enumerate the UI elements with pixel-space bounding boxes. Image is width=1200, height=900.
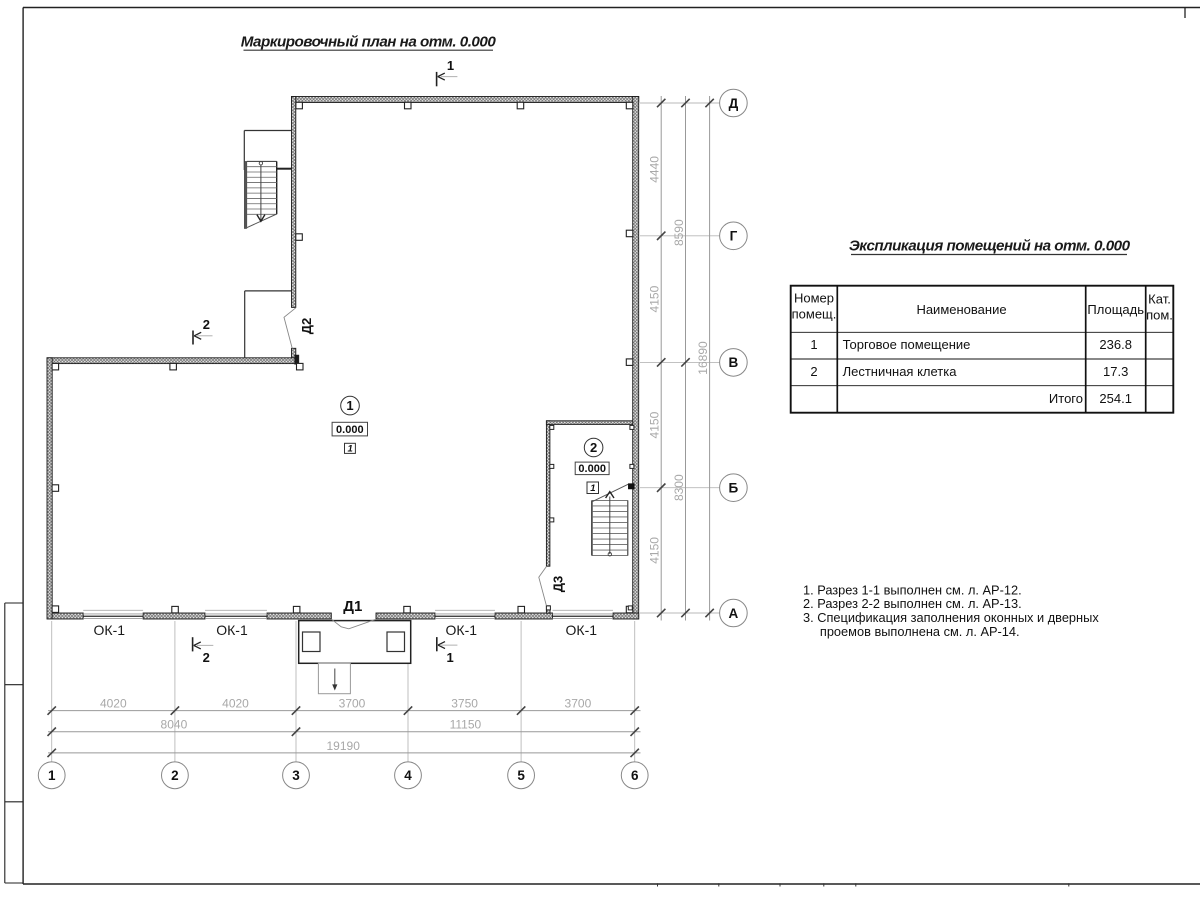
svg-text:4150: 4150 xyxy=(648,285,662,312)
svg-text:1: 1 xyxy=(590,483,595,494)
svg-text:1: 1 xyxy=(446,650,453,665)
svg-text:11150: 11150 xyxy=(450,718,482,732)
svg-text:Наименование: Наименование xyxy=(916,302,1006,317)
svg-text:В: В xyxy=(729,355,739,370)
svg-text:16890: 16890 xyxy=(696,341,710,375)
svg-text:4: 4 xyxy=(404,768,412,783)
svg-text:0.000: 0.000 xyxy=(578,463,606,475)
svg-text:Д: Д xyxy=(729,96,739,111)
svg-text:4150: 4150 xyxy=(648,411,662,438)
svg-text:Г: Г xyxy=(730,229,738,244)
svg-text:6: 6 xyxy=(631,768,639,783)
svg-text:2: 2 xyxy=(590,440,597,455)
svg-text:0.000: 0.000 xyxy=(336,424,364,436)
svg-text:проемов выполнена см. л. АР-14: проемов выполнена см. л. АР-14. xyxy=(820,624,1020,639)
svg-text:Д1: Д1 xyxy=(343,598,362,615)
svg-text:254.1: 254.1 xyxy=(1099,391,1132,406)
svg-text:Торговое помещение: Торговое помещение xyxy=(843,337,971,352)
svg-text:19190: 19190 xyxy=(327,739,361,753)
svg-text:4020: 4020 xyxy=(100,697,127,711)
svg-text:Кат.: Кат. xyxy=(1148,292,1171,307)
svg-text:2: 2 xyxy=(203,317,210,332)
svg-text:Номер: Номер xyxy=(794,291,834,306)
svg-text:ОК-1: ОК-1 xyxy=(566,622,598,638)
svg-text:4150: 4150 xyxy=(648,537,662,564)
svg-text:ОК-1: ОК-1 xyxy=(446,622,478,638)
svg-text:1: 1 xyxy=(346,398,353,413)
svg-text:помещ.: помещ. xyxy=(792,307,837,322)
svg-text:Маркировочный план на отм. 0.0: Маркировочный план на отм. 0.000 xyxy=(241,34,497,51)
svg-text:3: 3 xyxy=(292,768,300,783)
svg-text:2: 2 xyxy=(203,650,210,665)
svg-text:ОК-1: ОК-1 xyxy=(94,622,126,638)
svg-text:Д2: Д2 xyxy=(299,318,314,335)
svg-text:А: А xyxy=(729,606,739,621)
svg-text:Лестничная клетка: Лестничная клетка xyxy=(843,364,958,379)
svg-text:Б: Б xyxy=(729,481,739,496)
svg-text:3700: 3700 xyxy=(565,697,592,711)
svg-text:2: 2 xyxy=(171,768,179,783)
svg-text:8040: 8040 xyxy=(161,718,188,732)
svg-text:2. Разрез 2-2 выполнен см. л.: 2. Разрез 2-2 выполнен см. л. АР-13. xyxy=(803,596,1022,611)
svg-text:ОК-1: ОК-1 xyxy=(216,622,248,638)
svg-text:5: 5 xyxy=(517,768,525,783)
svg-text:8590: 8590 xyxy=(672,219,686,246)
svg-text:пом.: пом. xyxy=(1146,308,1173,323)
svg-text:Д3: Д3 xyxy=(550,576,565,593)
svg-text:Итого: Итого xyxy=(1049,391,1083,406)
svg-text:1: 1 xyxy=(447,58,454,73)
svg-text:17.3: 17.3 xyxy=(1103,364,1128,379)
svg-text:1: 1 xyxy=(348,444,353,455)
svg-text:2: 2 xyxy=(810,364,817,379)
svg-text:4440: 4440 xyxy=(648,156,662,183)
svg-text:1: 1 xyxy=(48,768,56,783)
svg-text:8300: 8300 xyxy=(672,474,686,501)
svg-text:1: 1 xyxy=(810,337,817,352)
svg-text:3700: 3700 xyxy=(339,697,366,711)
svg-text:4020: 4020 xyxy=(222,697,249,711)
svg-text:3. Спецификация заполнения око: 3. Спецификация заполнения оконных и две… xyxy=(803,610,1099,625)
svg-text:3750: 3750 xyxy=(451,697,478,711)
svg-text:Площадь: Площадь xyxy=(1087,302,1144,317)
svg-text:Экспликация помещений на отм.: Экспликация помещений на отм. 0.000 xyxy=(849,238,1131,255)
svg-text:236.8: 236.8 xyxy=(1099,337,1132,352)
